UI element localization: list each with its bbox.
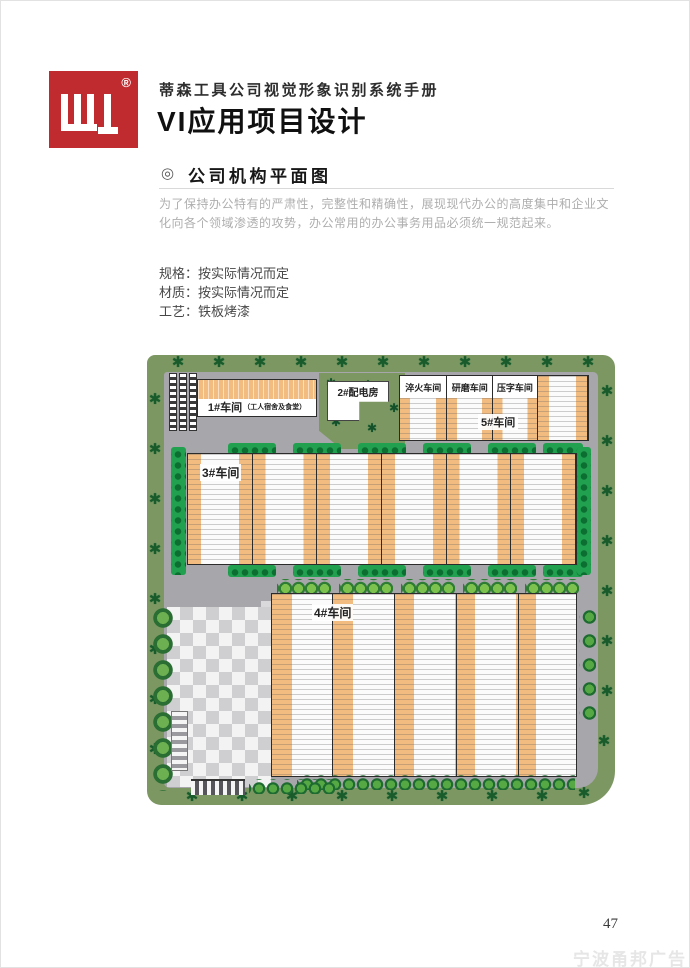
manual-title: 蒂森工具公司视觉形象识别系统手册 — [159, 79, 439, 100]
spec-line: 材质：按实际情况而定 — [159, 284, 289, 303]
tree-icon: ✱ — [146, 541, 164, 559]
tree-icon: ✱ — [579, 354, 597, 372]
hedge — [577, 447, 591, 575]
bay-quenching: 淬火车间 — [400, 376, 447, 440]
manual-page: ® 蒂森工具公司视觉形象识别系统手册 VI应用项目设计 ◎ 公司机构平面图 为了… — [0, 0, 690, 968]
bay-quenching-label: 淬火车间 — [405, 381, 441, 394]
bay-divider — [394, 594, 395, 776]
tree-row — [277, 579, 331, 594]
tree-icon: ✱ — [169, 354, 187, 372]
hedge — [228, 565, 276, 577]
stairs — [171, 711, 188, 771]
tree-row — [525, 579, 579, 594]
tree-icon: ✱ — [598, 383, 616, 401]
gate-grid — [169, 373, 177, 431]
tree-icon: ✱ — [575, 785, 593, 803]
workshop3-label: 3#车间 — [200, 464, 241, 481]
tree-icon: ✱ — [538, 354, 556, 372]
tree-icon: ✱ — [598, 683, 616, 701]
bush-row — [249, 779, 337, 794]
spec-line: 工艺：铁板烤漆 — [159, 303, 289, 322]
bay-stamping: 压字车间 — [493, 376, 538, 440]
tree-icon: ✱ — [456, 354, 474, 372]
page-title: VI应用项目设计 — [157, 100, 367, 140]
roof-bay — [511, 454, 576, 564]
site-plan: ✱ ✱ ✱ ✱ ✱ ✱ ✱ ✱ ✱ ✱ ✱ ✱ ✱ ✱ ✱ ✱ ✱ ✱ ✱ ✱ … — [147, 355, 615, 805]
tree-icon: ✱ — [598, 433, 616, 451]
brand-logo-icon: ® — [49, 71, 138, 148]
corrugated-roof — [538, 376, 587, 440]
bay-divider — [456, 594, 457, 776]
gate-grid — [179, 373, 187, 431]
section-description: 为了保持办公特有的严肃性，完整性和精确性，展现现代办公的高度集中和企业文化向各个… — [159, 195, 619, 232]
tree-icon: ✱ — [598, 533, 616, 551]
tree-row — [401, 579, 455, 594]
section-heading: 公司机构平面图 — [188, 162, 332, 187]
corrugated-roof — [400, 398, 446, 440]
workshop1-label: 1#车间 — [208, 399, 242, 415]
tree-icon: ✱ — [363, 419, 381, 437]
tree-icon: ✱ — [251, 354, 269, 372]
bay-divider — [518, 594, 519, 776]
tree-icon: ✱ — [374, 354, 392, 372]
building-workshop4: 4#车间 — [271, 593, 577, 777]
tree-icon: ✱ — [598, 583, 616, 601]
tree-icon: ✱ — [433, 788, 451, 806]
hedge — [423, 565, 471, 577]
tree-icon: ✱ — [533, 788, 551, 806]
spec-line: 规格：按实际情况而定 — [159, 265, 289, 284]
bay-grinding: 研磨车间 — [447, 376, 493, 440]
bay-grinding-label: 研磨车间 — [452, 381, 488, 394]
section-marker-icon: ◎ — [161, 164, 174, 182]
roof-bay — [447, 454, 512, 564]
tree-row — [463, 579, 517, 594]
roof-bay — [382, 454, 447, 564]
tree-icon: ✱ — [146, 441, 164, 459]
tree-icon: ✱ — [598, 483, 616, 501]
tree-icon: ✱ — [146, 391, 164, 409]
tree-icon: ✱ — [415, 354, 433, 372]
tree-icon: ✱ — [598, 633, 616, 651]
tree-icon: ✱ — [146, 491, 164, 509]
watermark: 宁波甬邦广告 — [573, 945, 687, 968]
bay-extra — [538, 376, 588, 440]
heading-divider — [159, 188, 614, 189]
registered-mark: ® — [121, 75, 131, 90]
building-workshop1: 1#车间 （工人宿舍及食堂） — [197, 379, 317, 417]
bush-column — [579, 601, 596, 729]
hedge — [358, 565, 406, 577]
building-workshop3: 3#车间 — [187, 453, 577, 565]
spec-list: 规格：按实际情况而定 材质：按实际情况而定 工艺：铁板烤漆 — [159, 265, 289, 322]
tree-icon: ✱ — [595, 733, 613, 751]
tree-icon: ✱ — [292, 354, 310, 372]
workshop5-label: 5#车间 — [478, 414, 518, 430]
tree-icon: ✱ — [383, 788, 401, 806]
mountain-logo-glyph — [57, 84, 123, 140]
page-number: 47 — [603, 916, 618, 933]
corrugated-roof — [198, 380, 316, 399]
workshop1-sublabel: （工人宿舍及食堂） — [243, 402, 306, 412]
building-workshop5: 淬火车间 研磨车间 压字车间 5#车间 — [399, 375, 589, 441]
powerhouse-label: 2#配电房 — [337, 388, 378, 399]
roof-bay — [317, 454, 382, 564]
crosswalk — [191, 779, 245, 795]
tree-icon: ✱ — [497, 354, 515, 372]
hedge — [293, 565, 341, 577]
bush-row — [297, 775, 575, 790]
hedge — [488, 565, 536, 577]
tree-icon: ✱ — [483, 788, 501, 806]
gate-grid — [189, 373, 197, 431]
tree-icon: ✱ — [210, 354, 228, 372]
roof-bay — [253, 454, 318, 564]
bay-stamping-label: 压字车间 — [497, 381, 533, 394]
bay-divider — [332, 594, 333, 776]
tree-row — [339, 579, 393, 594]
hedge — [171, 447, 186, 575]
workshop4-label: 4#车间 — [312, 604, 353, 621]
tree-icon: ✱ — [333, 354, 351, 372]
